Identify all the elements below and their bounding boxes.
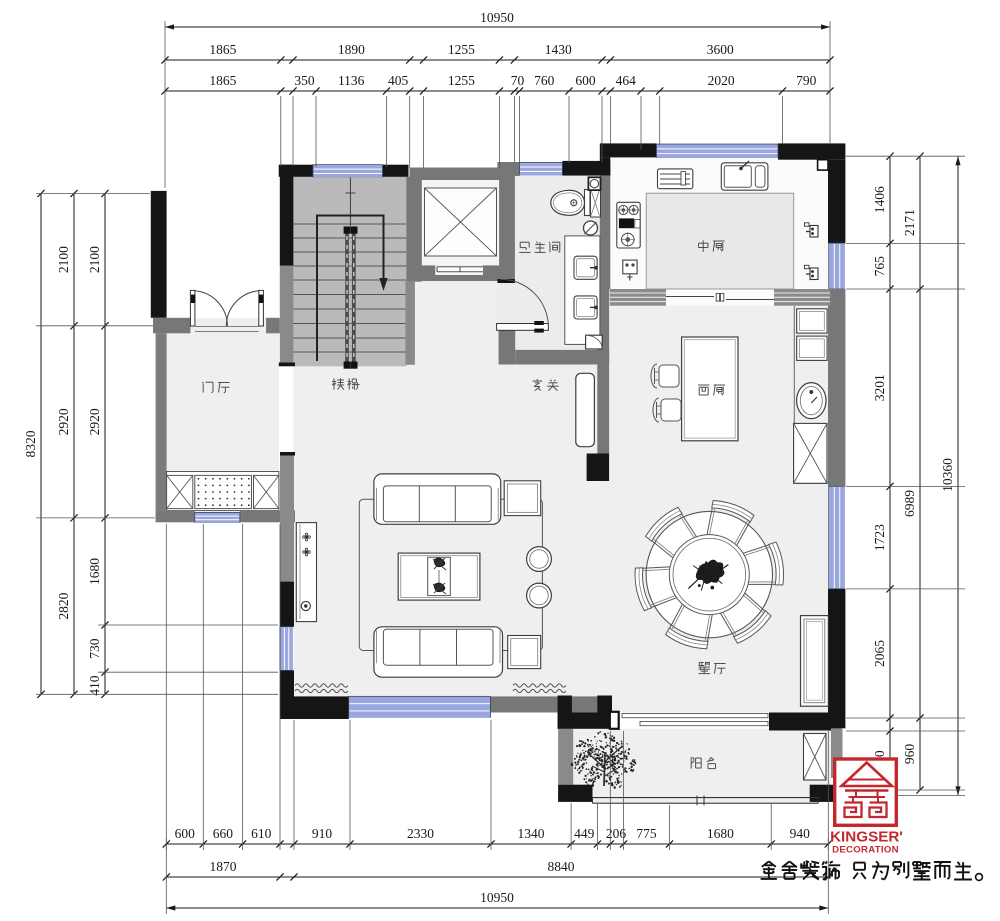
svg-text:1680: 1680 xyxy=(707,826,734,841)
svg-text:410: 410 xyxy=(87,675,102,696)
svg-text:1865: 1865 xyxy=(209,73,236,88)
svg-text:1680: 1680 xyxy=(87,558,102,585)
svg-text:610: 610 xyxy=(251,826,272,841)
svg-text:1136: 1136 xyxy=(338,73,365,88)
svg-text:790: 790 xyxy=(796,73,817,88)
svg-text:2820: 2820 xyxy=(56,592,71,619)
svg-text:3600: 3600 xyxy=(707,42,734,57)
svg-text:960: 960 xyxy=(902,744,917,765)
svg-text:1723: 1723 xyxy=(872,524,887,551)
svg-text:2330: 2330 xyxy=(407,826,434,841)
svg-text:760: 760 xyxy=(534,73,555,88)
svg-text:600: 600 xyxy=(175,826,196,841)
svg-text:2920: 2920 xyxy=(56,408,71,435)
svg-text:2920: 2920 xyxy=(87,408,102,435)
svg-text:1430: 1430 xyxy=(545,42,572,57)
svg-text:10950: 10950 xyxy=(480,890,514,905)
svg-text:775: 775 xyxy=(636,826,657,841)
svg-text:910: 910 xyxy=(312,826,333,841)
svg-text:1870: 1870 xyxy=(210,859,237,874)
svg-text:730: 730 xyxy=(87,638,102,659)
svg-text:2100: 2100 xyxy=(56,246,71,273)
svg-text:1406: 1406 xyxy=(872,186,887,213)
svg-text:1865: 1865 xyxy=(209,42,236,57)
svg-text:2171: 2171 xyxy=(902,209,917,236)
svg-text:8320: 8320 xyxy=(23,430,38,457)
svg-text:6989: 6989 xyxy=(902,490,917,517)
svg-text:600: 600 xyxy=(575,73,596,88)
svg-text:70: 70 xyxy=(511,73,525,88)
svg-text:KINGSER': KINGSER' xyxy=(830,829,903,846)
svg-text:2065: 2065 xyxy=(872,640,887,667)
svg-text:1340: 1340 xyxy=(518,826,545,841)
svg-text:1255: 1255 xyxy=(448,73,475,88)
svg-text:DECORATION: DECORATION xyxy=(832,845,899,856)
svg-text:8840: 8840 xyxy=(548,859,575,874)
svg-text:449: 449 xyxy=(574,826,595,841)
svg-text:765: 765 xyxy=(872,256,887,277)
svg-text:3201: 3201 xyxy=(872,374,887,401)
svg-text:2020: 2020 xyxy=(708,73,735,88)
svg-text:1255: 1255 xyxy=(448,42,475,57)
svg-text:2100: 2100 xyxy=(87,246,102,273)
svg-text:940: 940 xyxy=(790,826,811,841)
svg-text:405: 405 xyxy=(388,73,409,88)
svg-text:660: 660 xyxy=(213,826,234,841)
svg-text:350: 350 xyxy=(294,73,315,88)
svg-text:10950: 10950 xyxy=(480,10,514,25)
svg-text:1890: 1890 xyxy=(338,42,365,57)
svg-text:464: 464 xyxy=(616,73,637,88)
